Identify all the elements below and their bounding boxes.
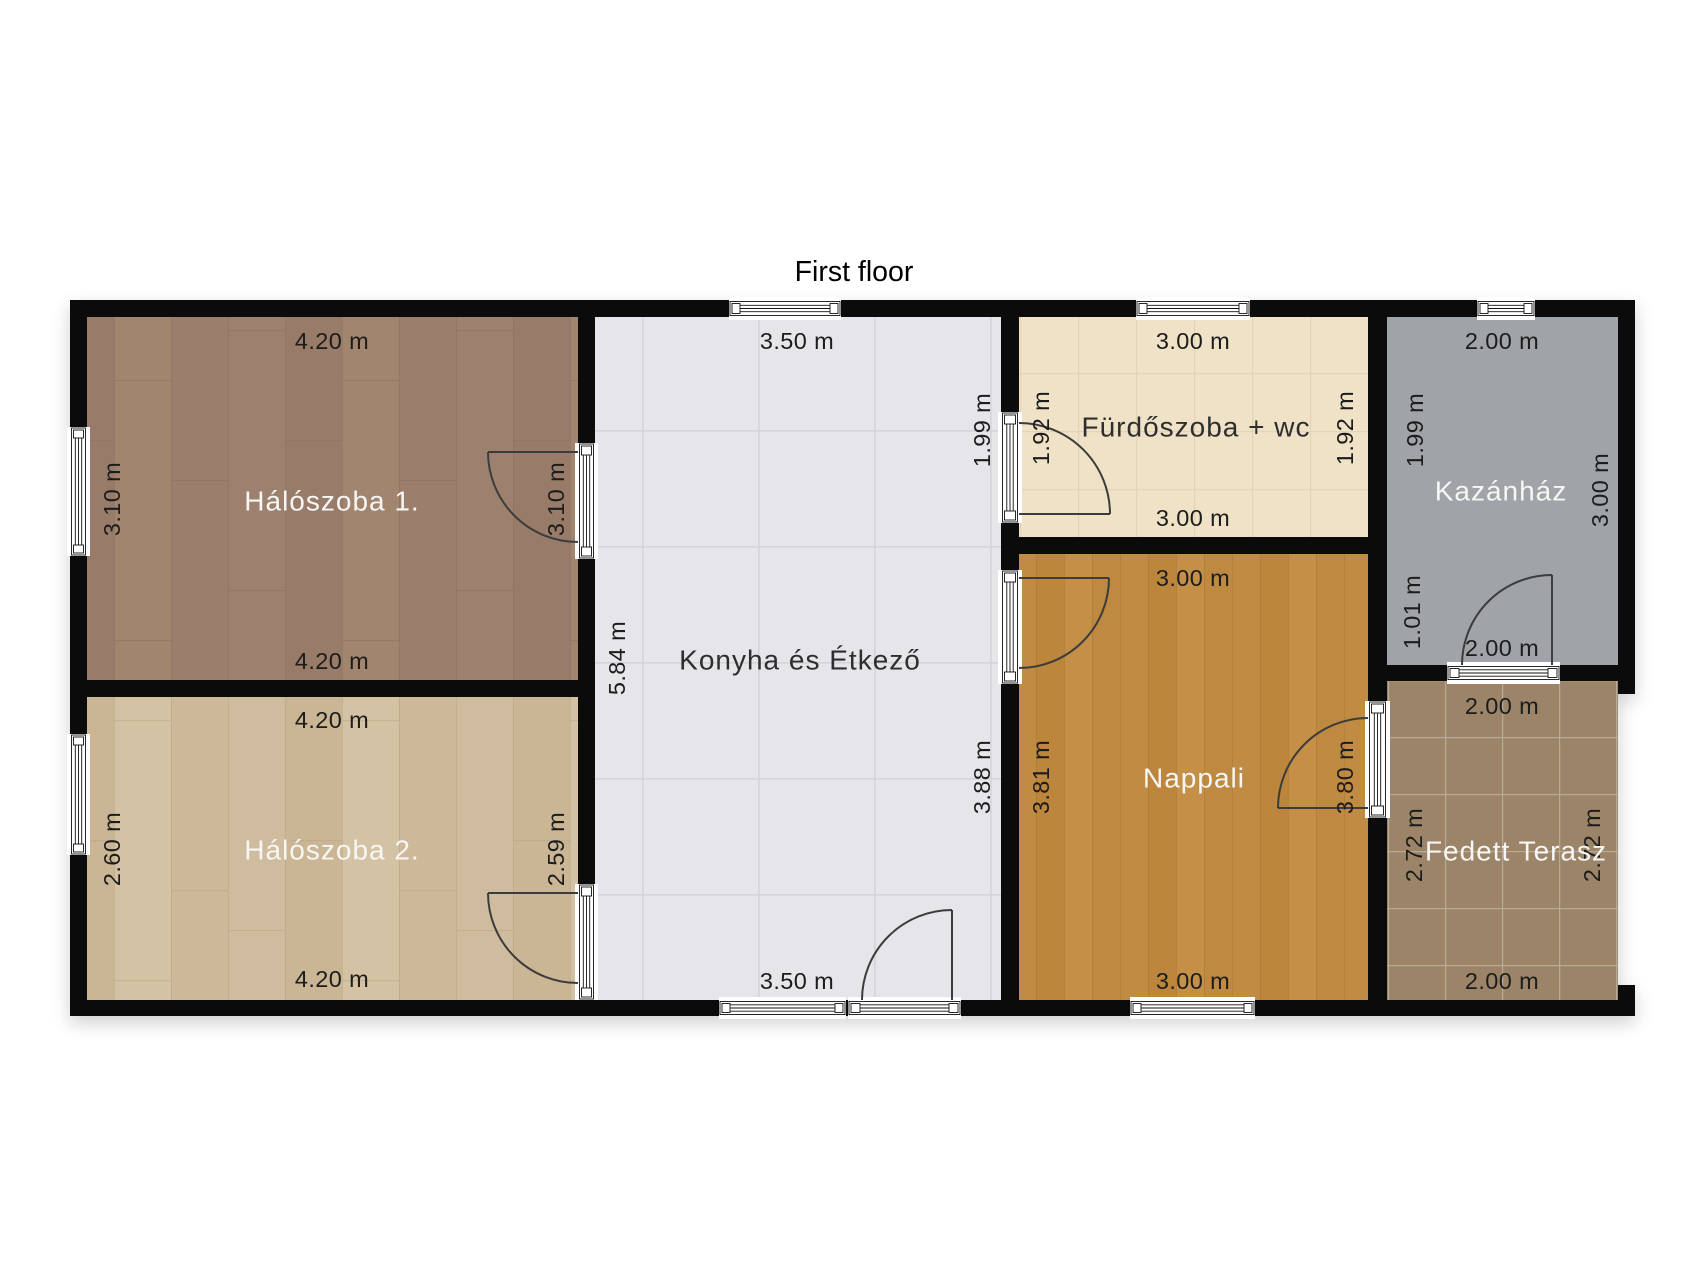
svg-text:2.60 m: 2.60 m xyxy=(99,812,125,886)
svg-text:2.72 m: 2.72 m xyxy=(1401,808,1427,882)
svg-text:1.99 m: 1.99 m xyxy=(969,393,995,467)
svg-text:Nappali: Nappali xyxy=(1143,763,1245,794)
svg-text:3.10 m: 3.10 m xyxy=(99,462,125,536)
svg-text:1.99 m: 1.99 m xyxy=(1402,393,1428,467)
svg-text:3.00 m: 3.00 m xyxy=(1156,968,1230,994)
svg-text:3.88 m: 3.88 m xyxy=(969,740,995,814)
svg-text:3.00 m: 3.00 m xyxy=(1156,505,1230,531)
svg-text:4.20 m: 4.20 m xyxy=(295,648,369,674)
svg-text:Kazánház: Kazánház xyxy=(1435,476,1568,507)
svg-text:1.92 m: 1.92 m xyxy=(1332,391,1358,465)
svg-text:3.00 m: 3.00 m xyxy=(1587,453,1613,527)
svg-text:3.00 m: 3.00 m xyxy=(1156,328,1230,354)
svg-text:4.20 m: 4.20 m xyxy=(295,328,369,354)
svg-text:3.81 m: 3.81 m xyxy=(1028,740,1054,814)
svg-text:4.20 m: 4.20 m xyxy=(295,707,369,733)
svg-text:3.50 m: 3.50 m xyxy=(760,968,834,994)
svg-text:4.20 m: 4.20 m xyxy=(295,966,369,992)
svg-text:Hálószoba 1.: Hálószoba 1. xyxy=(244,486,419,517)
svg-text:5.84 m: 5.84 m xyxy=(604,621,630,695)
svg-text:First floor: First floor xyxy=(795,256,914,288)
svg-text:3.80 m: 3.80 m xyxy=(1332,740,1358,814)
svg-text:3.50 m: 3.50 m xyxy=(760,328,834,354)
svg-text:3.10 m: 3.10 m xyxy=(543,462,569,536)
svg-text:2.00 m: 2.00 m xyxy=(1465,328,1539,354)
svg-text:2.59 m: 2.59 m xyxy=(543,812,569,886)
svg-text:Fürdőszoba + wc: Fürdőszoba + wc xyxy=(1082,412,1311,443)
svg-text:2.00 m: 2.00 m xyxy=(1465,968,1539,994)
svg-text:1.01 m: 1.01 m xyxy=(1399,575,1425,649)
svg-text:2.00 m: 2.00 m xyxy=(1465,693,1539,719)
svg-text:2.00 m: 2.00 m xyxy=(1465,635,1539,661)
svg-text:3.00 m: 3.00 m xyxy=(1156,565,1230,591)
svg-text:Fedett Terasz: Fedett Terasz xyxy=(1425,836,1607,867)
svg-text:Hálószoba 2.: Hálószoba 2. xyxy=(244,835,419,866)
svg-text:Konyha és Étkező: Konyha és Étkező xyxy=(679,645,921,676)
svg-text:1.92 m: 1.92 m xyxy=(1028,391,1054,465)
